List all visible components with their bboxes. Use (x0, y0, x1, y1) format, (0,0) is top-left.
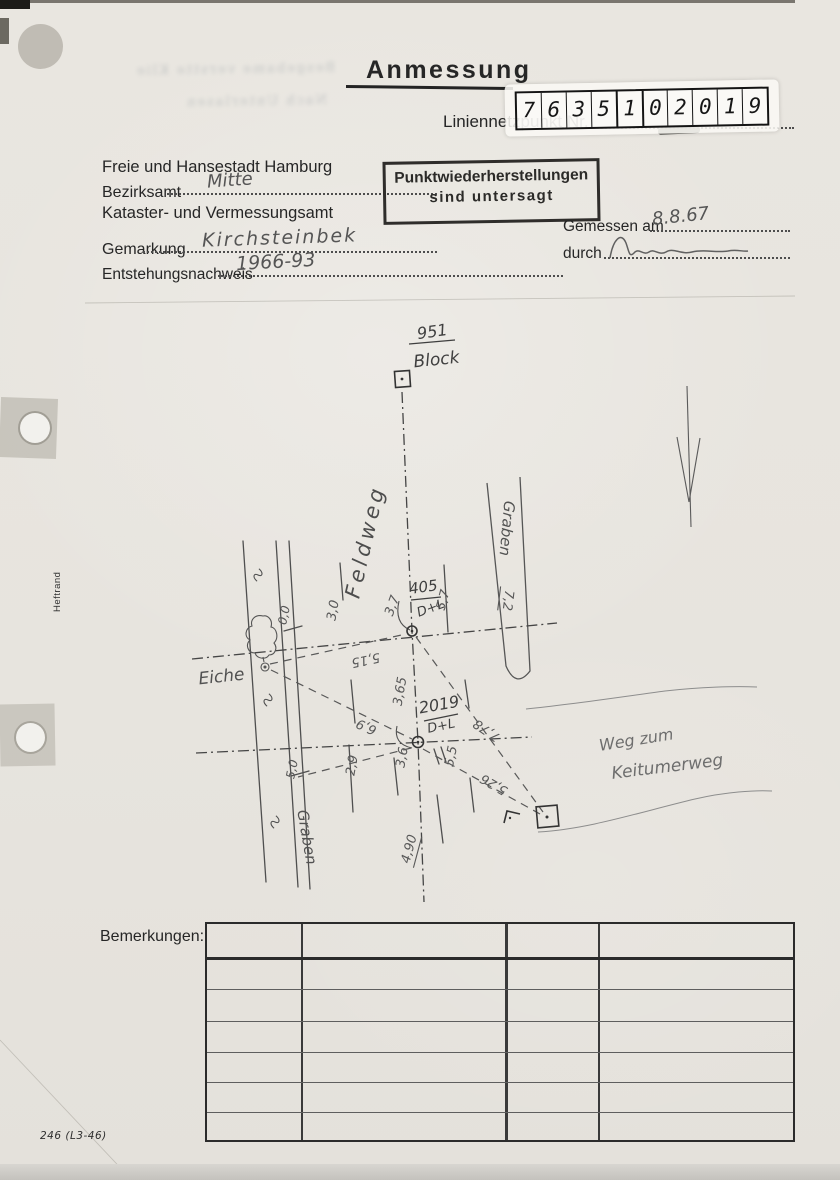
table-header-divider (207, 957, 793, 960)
road-squiggle-marks (253, 568, 280, 828)
measure: 5,15 (350, 649, 381, 670)
measure: 3,7 (382, 593, 403, 618)
measure: 0,0 (275, 604, 293, 626)
scan-bottom-strip (0, 1164, 840, 1180)
road-name: Feldweg (340, 482, 389, 600)
signature-scribble (610, 238, 748, 258)
measure: 5,26 (478, 770, 511, 797)
measure: 3,0 (324, 599, 342, 622)
point-number: 951 (416, 320, 449, 343)
ditch-label: Graben (496, 500, 519, 557)
point-number: 405 (408, 576, 439, 598)
bemerkungen-table (205, 922, 795, 1142)
table-row-divider (207, 989, 793, 990)
destination-label: Keitumerweg (610, 750, 724, 784)
measure: 3,65 (391, 676, 411, 707)
sketch-annotations: 951 Block 405 D+L 2019 D+L Feldweg Grabe… (198, 320, 725, 868)
point-name-underlines (409, 340, 458, 721)
measure: 7,2 (499, 589, 516, 611)
alignment-lines (192, 392, 557, 902)
angle-arcs (396, 601, 412, 748)
north-arrow-icon (677, 386, 700, 527)
table-row-divider (207, 1112, 793, 1113)
measure: 3,6 (393, 746, 411, 769)
ditch-label: Graben (293, 808, 320, 866)
scanned-survey-document: Besgebame verstte Klie Nach Unterlasen A… (0, 0, 840, 1180)
form-number: 246 (L3-46) (40, 1130, 107, 1142)
table-row-divider (207, 1052, 793, 1053)
corner-mark (504, 811, 520, 823)
bemerkungen-label: Bemerkungen: (100, 928, 204, 946)
destination-label: Weg zum (598, 724, 675, 755)
tree-label: Eiche (198, 665, 246, 690)
measure: 5,5 (442, 745, 461, 768)
table-row-divider (207, 1021, 793, 1022)
measure: 6,9 (354, 715, 379, 737)
point-type: Block (413, 348, 462, 373)
point-number: 2019 (417, 692, 460, 718)
measure: 4,90 (399, 833, 421, 865)
measure: 2,9 (343, 754, 361, 777)
table-row-divider (207, 1082, 793, 1083)
